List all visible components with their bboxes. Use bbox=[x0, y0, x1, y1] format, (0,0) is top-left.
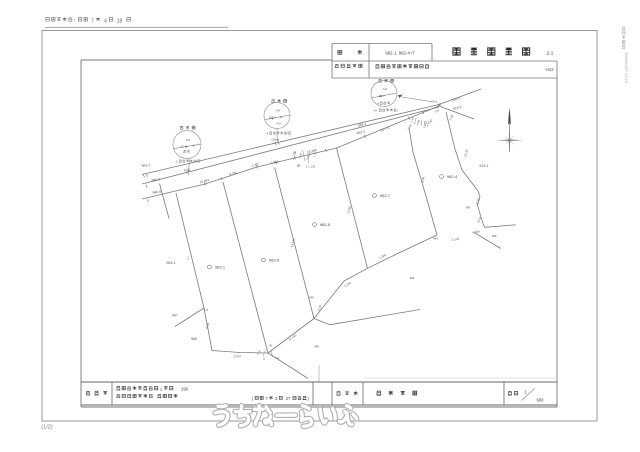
svg-text:4.08: 4.08 bbox=[415, 119, 421, 126]
svg-text:4.104: 4.104 bbox=[451, 237, 459, 242]
svg-text:1.304: 1.304 bbox=[378, 253, 387, 260]
svg-text:962-5: 962-5 bbox=[320, 222, 331, 227]
svg-text:962-1: 962-1 bbox=[358, 122, 367, 128]
svg-text:7.944: 7.944 bbox=[270, 159, 279, 165]
svg-text::: : bbox=[74, 18, 75, 24]
svg-text:962-1: 962-1 bbox=[215, 265, 226, 270]
svg-text:962-7: 962-7 bbox=[380, 193, 391, 198]
svg-text:7.04: 7.04 bbox=[449, 114, 454, 121]
svg-text:15.36: 15.36 bbox=[463, 149, 469, 158]
svg-text:1.04: 1.04 bbox=[434, 108, 441, 114]
svg-text:4-6: 4-6 bbox=[276, 109, 281, 113]
svg-text:962-6: 962-6 bbox=[269, 258, 280, 263]
svg-text:2-1: 2-1 bbox=[547, 51, 554, 56]
svg-text:962-1. 962-4~7: 962-1. 962-4~7 bbox=[385, 51, 415, 56]
svg-text:1.66: 1.66 bbox=[291, 150, 297, 157]
svg-text:2.60: 2.60 bbox=[407, 123, 413, 130]
svg-text:13.80: 13.80 bbox=[346, 205, 352, 214]
svg-text:916-2: 916-2 bbox=[451, 96, 461, 102]
svg-text:5.04: 5.04 bbox=[205, 322, 210, 329]
svg-text:1.9: 1.9 bbox=[204, 308, 208, 312]
svg-text:4-6: 4-6 bbox=[276, 122, 281, 126]
svg-text:398: 398 bbox=[314, 344, 319, 348]
svg-text:2025/03/27 13:15: 2025/03/27 13:15 bbox=[624, 52, 629, 84]
svg-text:4.104: 4.104 bbox=[343, 281, 352, 288]
svg-text:14.171: 14.171 bbox=[380, 125, 391, 132]
svg-text:1: 1 bbox=[176, 160, 178, 164]
svg-text:27: 27 bbox=[286, 396, 291, 401]
svg-text:389: 389 bbox=[492, 234, 497, 238]
svg-text:913-1: 913-1 bbox=[479, 164, 488, 168]
svg-text:960-9: 960-9 bbox=[151, 177, 160, 182]
svg-text:162-4: 162-4 bbox=[268, 115, 276, 119]
svg-text:5.30: 5.30 bbox=[317, 304, 323, 311]
svg-text:(: ( bbox=[252, 396, 254, 401]
svg-text:): ) bbox=[307, 396, 309, 401]
svg-text:2.00: 2.00 bbox=[297, 152, 303, 159]
svg-text:963-1: 963-1 bbox=[166, 261, 175, 265]
svg-text:4: 4 bbox=[104, 18, 107, 24]
svg-text:62-1: 62-1 bbox=[180, 145, 186, 149]
svg-text:4-6: 4-6 bbox=[186, 138, 191, 142]
svg-text:7: 7 bbox=[265, 396, 268, 401]
svg-text:960-8: 960-8 bbox=[152, 190, 161, 195]
svg-text:4-6: 4-6 bbox=[383, 87, 388, 91]
svg-text:40: 40 bbox=[269, 343, 273, 347]
svg-text:11.193: 11.193 bbox=[288, 333, 298, 341]
svg-text:500: 500 bbox=[537, 398, 545, 403]
svg-text:962-3: 962-3 bbox=[356, 129, 365, 135]
svg-text:968: 968 bbox=[191, 337, 197, 341]
svg-text:962-4: 962-4 bbox=[447, 174, 458, 179]
svg-text:940: 940 bbox=[466, 205, 471, 209]
svg-text:1-2.128: 1-2.128 bbox=[306, 165, 316, 169]
svg-text:916-3: 916-3 bbox=[453, 105, 462, 111]
svg-text:): ) bbox=[397, 109, 398, 113]
svg-text:290: 290 bbox=[181, 386, 189, 391]
svg-text:1: 1 bbox=[160, 386, 163, 391]
svg-text:9.756: 9.756 bbox=[229, 171, 238, 177]
svg-text:9.06: 9.06 bbox=[420, 176, 425, 183]
svg-text:(1/2): (1/2) bbox=[41, 425, 53, 431]
svg-text:7: 7 bbox=[91, 18, 94, 24]
svg-text:(4: (4 bbox=[374, 109, 377, 113]
svg-text:12.84: 12.84 bbox=[233, 354, 241, 358]
svg-text:162-4: 162-4 bbox=[271, 137, 279, 141]
svg-text:963 2: 963 2 bbox=[141, 163, 150, 168]
svg-text:H42: H42 bbox=[545, 67, 554, 72]
svg-text:4.33: 4.33 bbox=[475, 198, 481, 205]
svg-text:1: 1 bbox=[524, 389, 527, 394]
svg-text:394: 394 bbox=[410, 276, 415, 280]
svg-text:946: 946 bbox=[433, 236, 438, 240]
svg-text:4: 4 bbox=[266, 132, 268, 136]
svg-text:50-7: 50-7 bbox=[379, 94, 385, 98]
svg-text:1.05: 1.05 bbox=[256, 349, 262, 356]
svg-text:4.205: 4.205 bbox=[472, 229, 480, 234]
svg-text:1.7: 1.7 bbox=[186, 255, 191, 260]
svg-text:11: 11 bbox=[263, 357, 266, 361]
svg-text:3: 3 bbox=[275, 396, 278, 401]
svg-text:967: 967 bbox=[172, 313, 178, 317]
svg-text:4.0: 4.0 bbox=[275, 356, 279, 360]
svg-text:18: 18 bbox=[117, 18, 123, 24]
svg-text:940: 940 bbox=[309, 296, 314, 300]
svg-text:20-1: 20-1 bbox=[431, 99, 437, 103]
